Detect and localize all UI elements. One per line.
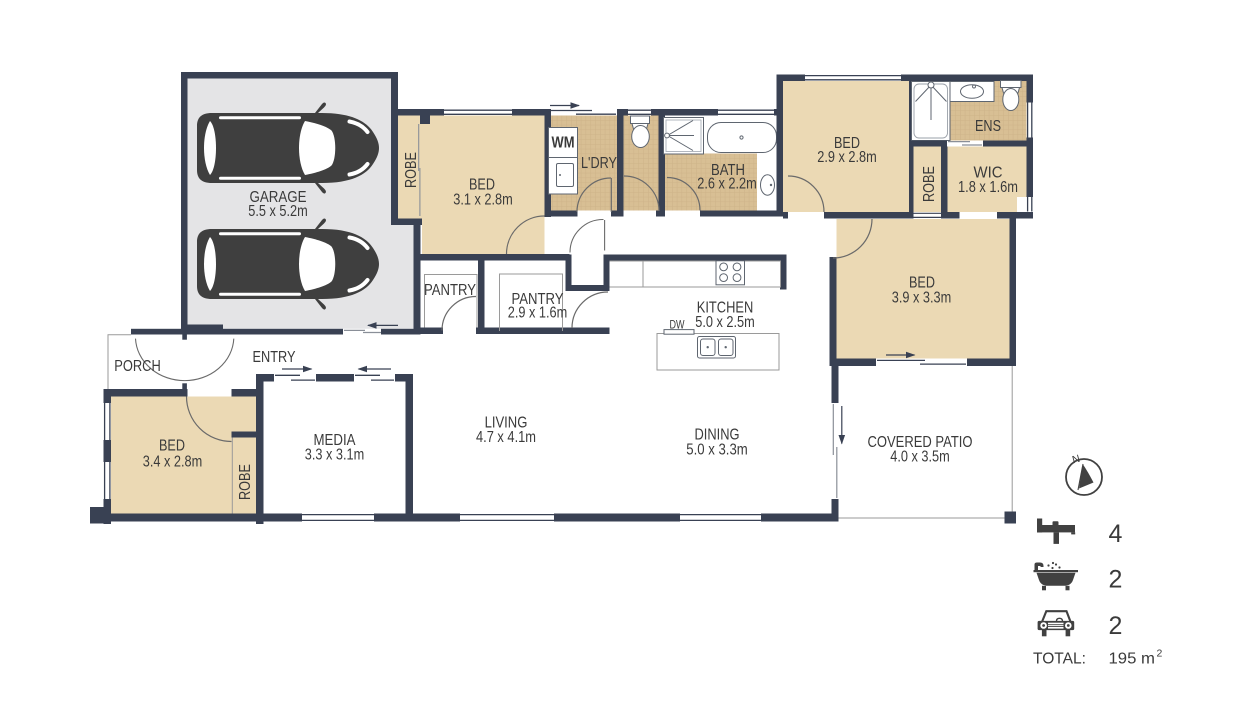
svg-text:ROBE: ROBE bbox=[403, 152, 420, 188]
svg-text:DW: DW bbox=[670, 320, 685, 332]
svg-text:ROBE: ROBE bbox=[237, 464, 254, 500]
svg-text:BED: BED bbox=[159, 438, 185, 455]
svg-text:TOTAL:: TOTAL: bbox=[1033, 651, 1086, 668]
svg-text:4.7 x 4.1m: 4.7 x 4.1m bbox=[476, 429, 536, 446]
svg-text:ENS: ENS bbox=[975, 118, 1001, 135]
svg-text:3.4 x 2.8m: 3.4 x 2.8m bbox=[143, 454, 203, 471]
svg-text:3.9 x 3.3m: 3.9 x 3.3m bbox=[892, 290, 952, 307]
svg-text:WM: WM bbox=[552, 135, 575, 152]
svg-text:3.1 x 2.8m: 3.1 x 2.8m bbox=[453, 191, 513, 208]
svg-text:1.8 x 1.6m: 1.8 x 1.6m bbox=[958, 179, 1018, 196]
svg-text:ROBE: ROBE bbox=[921, 166, 938, 202]
svg-text:L'DRY: L'DRY bbox=[581, 155, 617, 172]
svg-text:PANTRY: PANTRY bbox=[424, 282, 476, 299]
svg-text:2.6 x 2.2m: 2.6 x 2.2m bbox=[697, 176, 757, 193]
svg-text:ENTRY: ENTRY bbox=[253, 349, 296, 366]
svg-text:2: 2 bbox=[1109, 566, 1123, 594]
svg-text:2: 2 bbox=[1157, 648, 1163, 660]
svg-text:PORCH: PORCH bbox=[114, 358, 161, 375]
svg-text:5.5 x 5.2m: 5.5 x 5.2m bbox=[248, 203, 308, 220]
svg-text:2: 2 bbox=[1109, 612, 1123, 640]
svg-text:5.0 x 3.3m: 5.0 x 3.3m bbox=[686, 442, 748, 459]
svg-text:2.9 x 1.6m: 2.9 x 1.6m bbox=[508, 305, 568, 322]
svg-text:4: 4 bbox=[1109, 520, 1123, 548]
svg-text:195 m: 195 m bbox=[1109, 651, 1156, 668]
svg-text:5.0 x 2.5m: 5.0 x 2.5m bbox=[695, 314, 755, 331]
svg-text:2.9 x 2.8m: 2.9 x 2.8m bbox=[817, 149, 877, 166]
svg-text:4.0 x 3.5m: 4.0 x 3.5m bbox=[890, 449, 950, 466]
svg-text:3.3 x 3.1m: 3.3 x 3.1m bbox=[305, 446, 365, 463]
